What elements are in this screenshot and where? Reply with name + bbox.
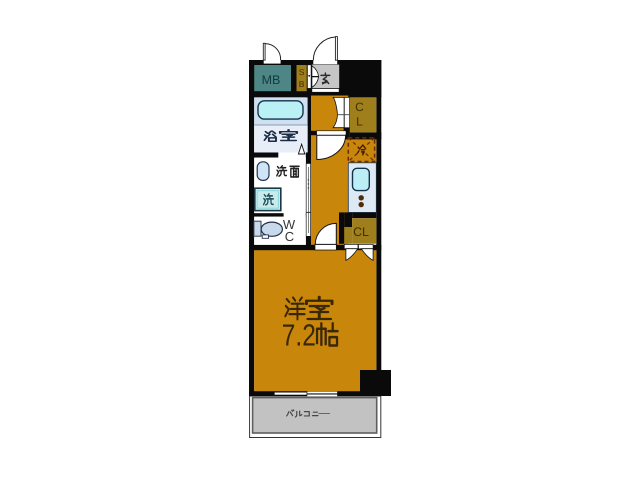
svg-text:B: B xyxy=(299,79,305,89)
svg-text:CL: CL xyxy=(353,225,369,239)
svg-text:S: S xyxy=(299,67,305,77)
svg-text:MB: MB xyxy=(262,73,281,87)
svg-text:C: C xyxy=(285,229,294,244)
svg-text:C: C xyxy=(355,100,364,114)
svg-text:7.2: 7.2 xyxy=(282,318,316,352)
svg-text:L: L xyxy=(356,115,363,129)
